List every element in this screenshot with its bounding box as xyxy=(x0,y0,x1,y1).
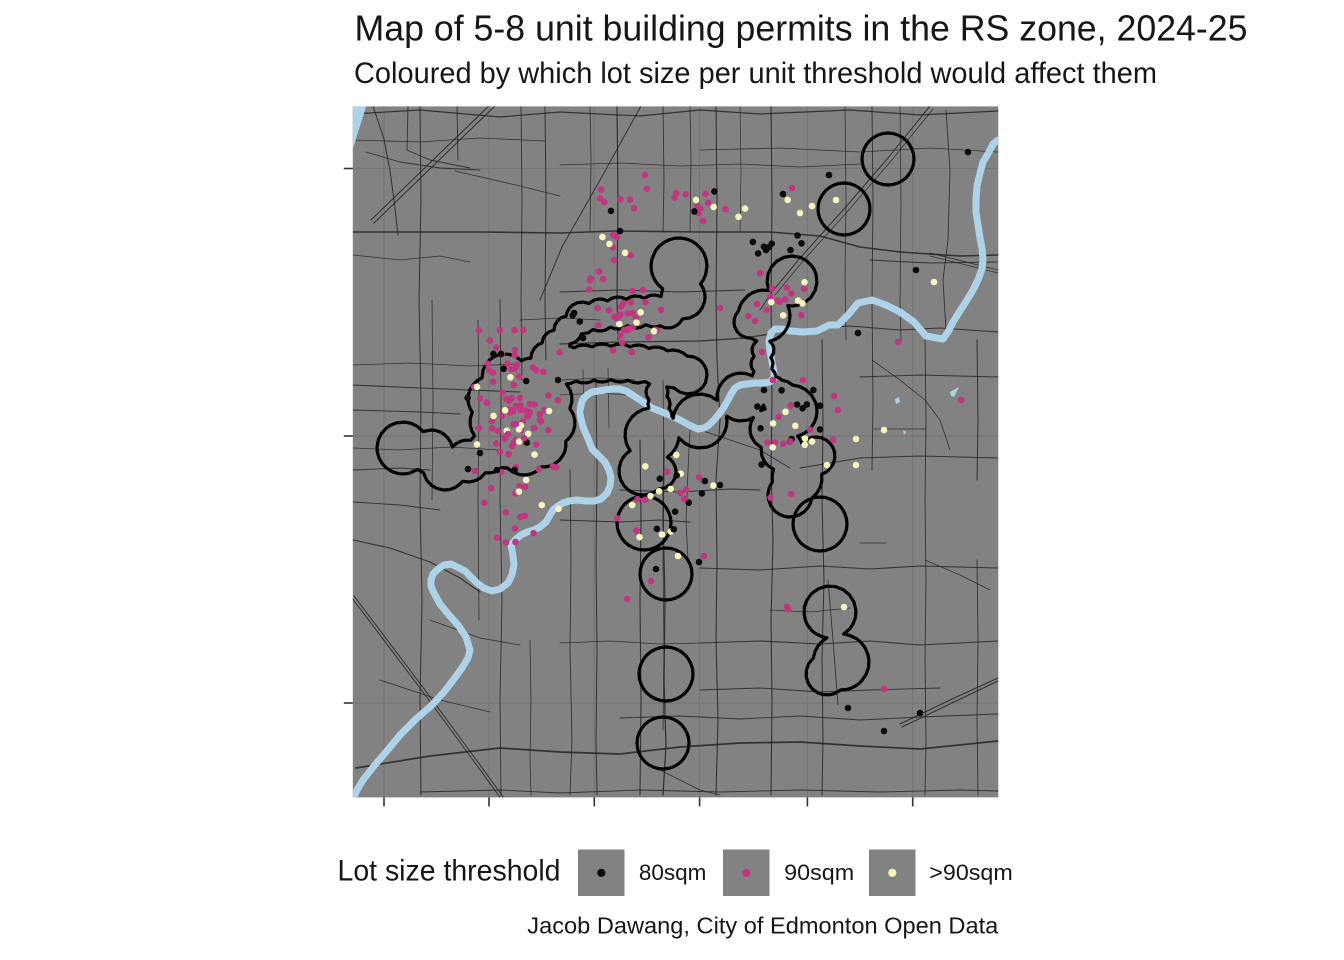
svg-text:>90sqm: >90sqm xyxy=(929,860,1013,885)
svg-text:Coloured by which lot size per: Coloured by which lot size per unit thre… xyxy=(354,57,1157,90)
svg-text:80sqm: 80sqm xyxy=(639,860,707,885)
svg-text:Jacob Dawang, City of Edmonton: Jacob Dawang, City of Edmonton Open Data xyxy=(527,912,999,938)
svg-text:Lot size threshold: Lot size threshold xyxy=(338,854,561,887)
svg-text:Map of 5-8 unit building permi: Map of 5-8 unit building permits in the … xyxy=(355,7,1248,48)
svg-text:90sqm: 90sqm xyxy=(784,860,854,885)
